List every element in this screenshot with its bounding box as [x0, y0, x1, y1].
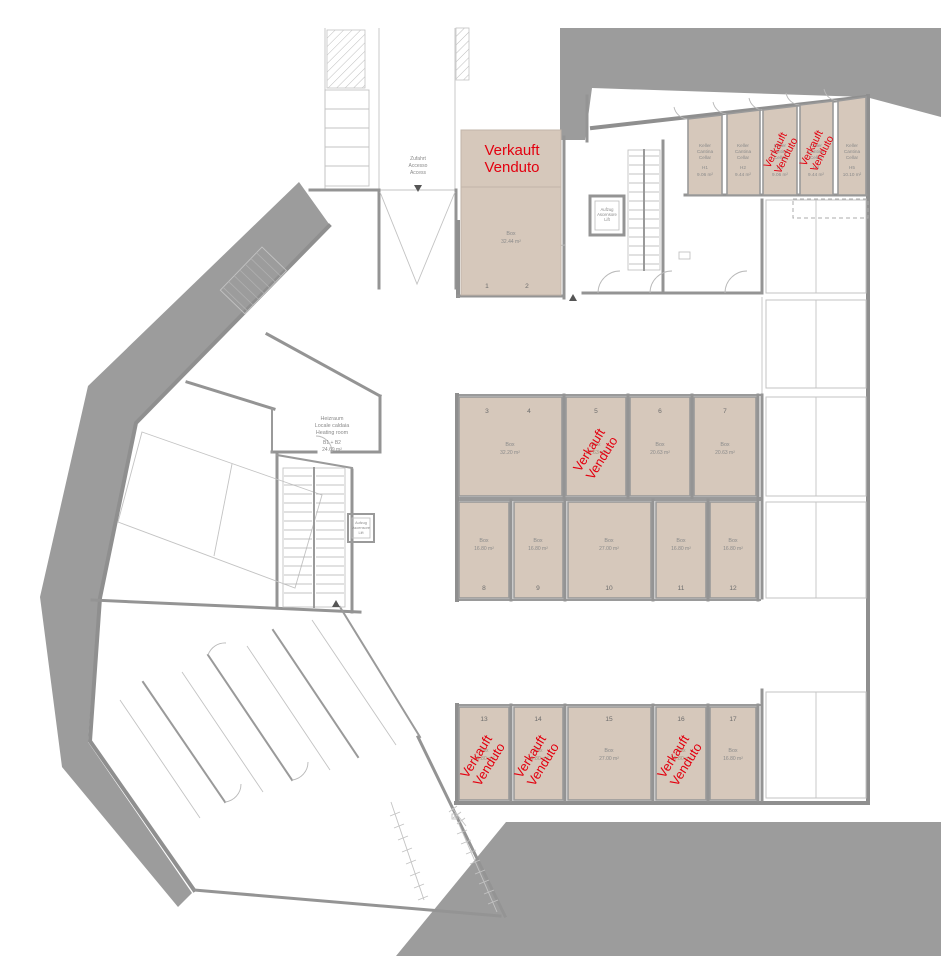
c5-area: 10.10 m² [843, 172, 862, 177]
c5-l3: Cellar [846, 155, 859, 160]
lift-top-line3: Lift [604, 217, 610, 222]
cellar-units: Keller Cantina Cellar H1 9.06 m² Keller … [688, 97, 866, 195]
floor-plan-page: Zufahrt Accesso Access Aufzug Ascensore … [0, 0, 941, 960]
box34-label: Box [505, 442, 515, 448]
sold-text-line1: Verkauft [484, 142, 540, 159]
heating-line1: Heizraum [320, 416, 344, 422]
c1-l2: Cantina [697, 149, 714, 154]
lift-label-top: Aufzug Ascensore Lift [597, 207, 617, 222]
c2-id: H2 [740, 165, 746, 170]
c5-l2: Cantina [844, 149, 861, 154]
box9-label: Box [533, 538, 543, 544]
num-7: 7 [723, 408, 727, 415]
box8-area: 16.80 m² [474, 546, 494, 552]
heating-line3: Heating room [316, 430, 349, 436]
exterior-stair-strip [325, 90, 369, 186]
num-10: 10 [605, 585, 613, 592]
box17-label: Box [728, 748, 738, 754]
num-4: 4 [527, 408, 531, 415]
space-2: 2 [525, 283, 529, 290]
heating-line2: Locale caldaia [315, 423, 349, 429]
box15-area: 27.00 m² [599, 756, 619, 762]
heating-room-label: Heizraum Locale caldaia Heating room B1 … [315, 416, 349, 453]
num-15: 15 [605, 716, 613, 723]
c5-l1: Keller [846, 143, 858, 148]
c1-l1: Keller [699, 143, 711, 148]
box11-area: 16.80 m² [671, 546, 691, 552]
num-6: 6 [658, 408, 662, 415]
num-5: 5 [594, 408, 598, 415]
unit-entry-box: Box 32.44 m² 1 2 [461, 187, 561, 295]
entry-box-label: Box [506, 231, 516, 237]
lift-left-line1: Aufzug [355, 521, 367, 525]
c2-area: 9.44 m² [735, 172, 751, 177]
c2-l3: Cellar [737, 155, 750, 160]
unit-top-sold: Verkauft Venduto [461, 130, 561, 187]
box7-label: Box [720, 442, 730, 448]
box9-area: 16.80 m² [528, 546, 548, 552]
access-line1: Zufahrt [410, 156, 426, 162]
access-label: Zufahrt Accesso Access [409, 156, 428, 176]
entry-box-area: 32.44 m² [501, 239, 521, 245]
stairwell-top [569, 150, 660, 301]
open-parking-stalls [766, 199, 868, 798]
box-row-c: 13 14 15 16 17 Box 16.80 m² Box 16.80 m²… [457, 707, 756, 800]
site-lines [325, 28, 469, 190]
lift-label-left: Aufzug Ascensore Lift [352, 521, 370, 535]
box10-area: 27.00 m² [599, 546, 619, 552]
access-line3: Access [410, 170, 427, 176]
num-12: 12 [729, 585, 737, 592]
box6-area: 20.63 m² [650, 450, 670, 456]
box10-label: Box [604, 538, 614, 544]
stair-arrow-left [332, 600, 340, 607]
box17-area: 16.80 m² [723, 756, 743, 762]
box-row-a: 3 4 5 6 7 Box 32.20 m² Box 20.63 m² Box … [459, 397, 756, 496]
sold-text-line2: Venduto [484, 159, 539, 176]
c2-l2: Cantina [735, 149, 752, 154]
floor-plan-drawing: Zufahrt Accesso Access Aufzug Ascensore … [0, 0, 941, 960]
box34-area: 32.20 m² [500, 450, 520, 456]
num-3: 3 [485, 408, 489, 415]
box6-label: Box [655, 442, 665, 448]
heating-area: 24.69 m² [322, 447, 342, 453]
c2-l1: Keller [737, 143, 749, 148]
box12-label: Box [728, 538, 738, 544]
stair-arrow-top [569, 294, 577, 301]
hatched-shaft [327, 30, 365, 88]
num-16: 16 [677, 716, 685, 723]
exterior-left-band [40, 182, 329, 907]
heating-unit-id: B1 + B2 [323, 440, 341, 446]
box7-area: 20.63 m² [715, 450, 735, 456]
box12-area: 16.80 m² [723, 546, 743, 552]
c1-id: H1 [702, 165, 708, 170]
lift-left-line3: Lift [358, 531, 364, 535]
c1-l3: Cellar [699, 155, 712, 160]
exterior-bottom [396, 822, 941, 956]
ramp-direction-arrow [414, 185, 422, 192]
box15-label: Box [604, 748, 614, 754]
num-13: 13 [480, 716, 488, 723]
c5-id: H5 [849, 165, 855, 170]
box-row-b: Box 16.80 m² Box 16.80 m² Box 27.00 m² B… [459, 502, 756, 598]
num-8: 8 [482, 585, 486, 592]
box8-label: Box [479, 538, 489, 544]
access-line2: Accesso [409, 163, 428, 169]
stairwell-left [283, 468, 374, 607]
box11-label: Box [676, 538, 686, 544]
num-14: 14 [534, 716, 542, 723]
entry-ramp [380, 185, 455, 284]
num-17: 17 [729, 716, 737, 723]
c1-area: 9.06 m² [697, 172, 713, 177]
space-1: 1 [485, 283, 489, 290]
hatched-shaft-right [456, 28, 469, 80]
num-11: 11 [678, 585, 685, 592]
num-9: 9 [536, 585, 540, 592]
lift-left-line2: Ascensore [352, 526, 370, 530]
